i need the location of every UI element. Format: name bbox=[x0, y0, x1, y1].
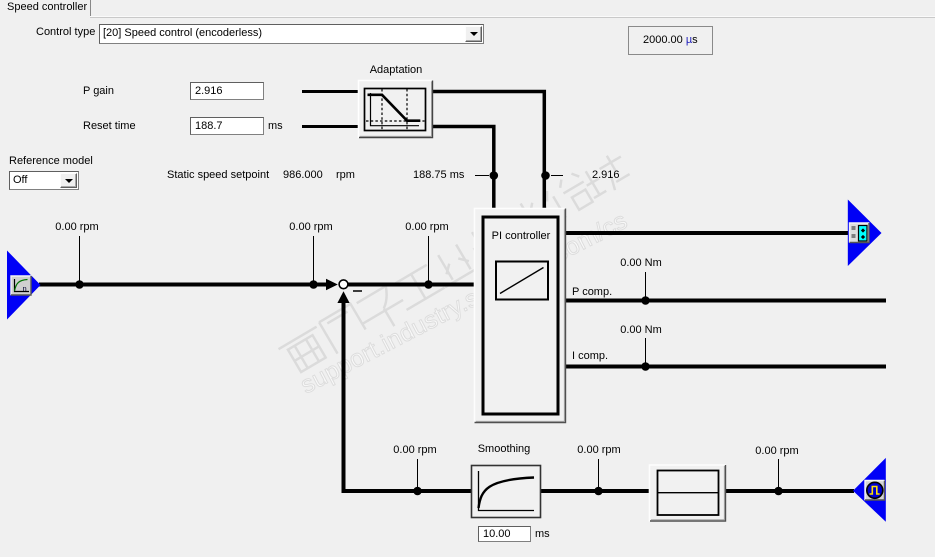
svg-text:n: n bbox=[23, 284, 27, 293]
svg-text:support.industry.siemens.com/c: support.industry.siemens.com/cs bbox=[296, 207, 632, 399]
